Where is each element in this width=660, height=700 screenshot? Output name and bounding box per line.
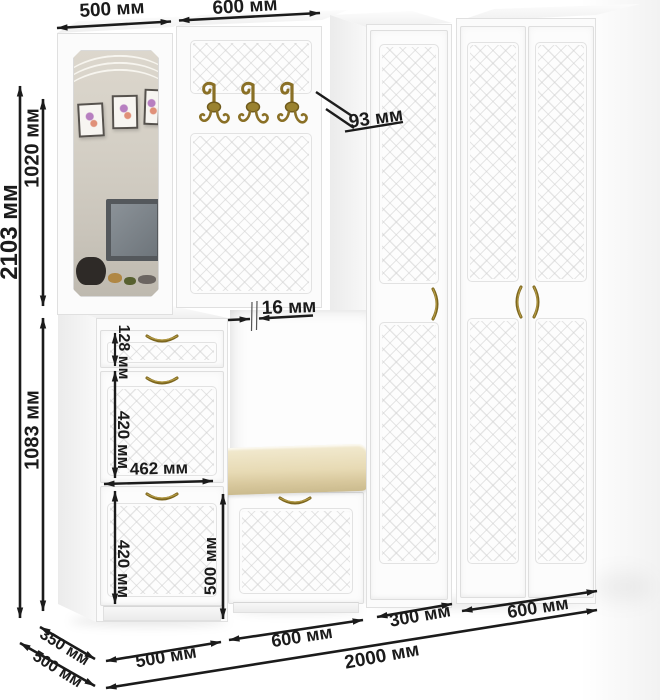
- shoe-cabinet-plinth: [103, 606, 221, 621]
- picture-frame-reflection: [143, 89, 159, 126]
- coat-hook-icon: [237, 80, 269, 130]
- dim-label-panel-thickness: 16 мм: [261, 296, 316, 320]
- wardrobe-handle-icon: [530, 284, 542, 320]
- shelf-item-reflection: [108, 273, 122, 283]
- dim-label-bottom-shoe: 500 мм: [134, 642, 198, 673]
- left-door-lower-quilt: [467, 318, 519, 564]
- bench-flap-quilt: [239, 508, 353, 594]
- drawer-handle-icon: [144, 333, 180, 345]
- mirror: [73, 50, 159, 297]
- wardrobe-handle-icon: [513, 284, 525, 320]
- dim-label-total-height: 2103 мм: [0, 184, 24, 280]
- bench-plinth: [233, 602, 359, 613]
- shoe-cabinet-side: [58, 306, 96, 622]
- dim-label-drawer-height: 128 мм: [114, 325, 132, 380]
- right-door-lower-quilt: [535, 318, 587, 564]
- coat-hook-icon: [198, 80, 230, 130]
- dim-label-bench-height: 500 мм: [201, 537, 221, 595]
- tv-reflection: [106, 199, 159, 261]
- wardrobe-handle-icon: [429, 286, 441, 322]
- shelf-item-reflection: [138, 275, 156, 284]
- dim-label-bottom-bench: 600 мм: [270, 622, 334, 652]
- single-door-lower-quilt: [379, 322, 439, 564]
- picture-frame-reflection: [77, 102, 105, 137]
- dim-label-flap-width: 462 мм: [130, 458, 189, 480]
- flap-handle-icon: [144, 375, 180, 387]
- picture-frame-reflection: [112, 95, 139, 129]
- bench-niche: [230, 310, 366, 452]
- dim-label-upper-height: 1020 мм: [22, 108, 45, 188]
- floor-shadow: [592, 572, 652, 602]
- dim-label-top-left-width: 500 мм: [79, 0, 145, 23]
- single-door-upper-quilt: [379, 44, 439, 284]
- coat-panel-lower-quilt: [190, 133, 312, 294]
- bench-handle-icon: [277, 495, 313, 507]
- left-door-upper-quilt: [467, 42, 519, 282]
- dim-label-bottom-total: 2000 мм: [343, 639, 421, 674]
- dim-label-lower-flap: 420 мм: [113, 540, 133, 598]
- bench-cushion: [219, 444, 368, 496]
- bag-reflection: [76, 257, 106, 285]
- furniture-dimension-diagram: 500 мм 600 мм 2103 мм 1020 мм 1083 мм 93…: [0, 0, 660, 700]
- dim-label-lower-height: 1083 мм: [22, 390, 45, 470]
- shelf-item-reflection: [124, 277, 136, 285]
- coat-hook-icon: [276, 80, 308, 130]
- flap-handle-icon: [144, 491, 180, 503]
- right-door-upper-quilt: [535, 42, 587, 282]
